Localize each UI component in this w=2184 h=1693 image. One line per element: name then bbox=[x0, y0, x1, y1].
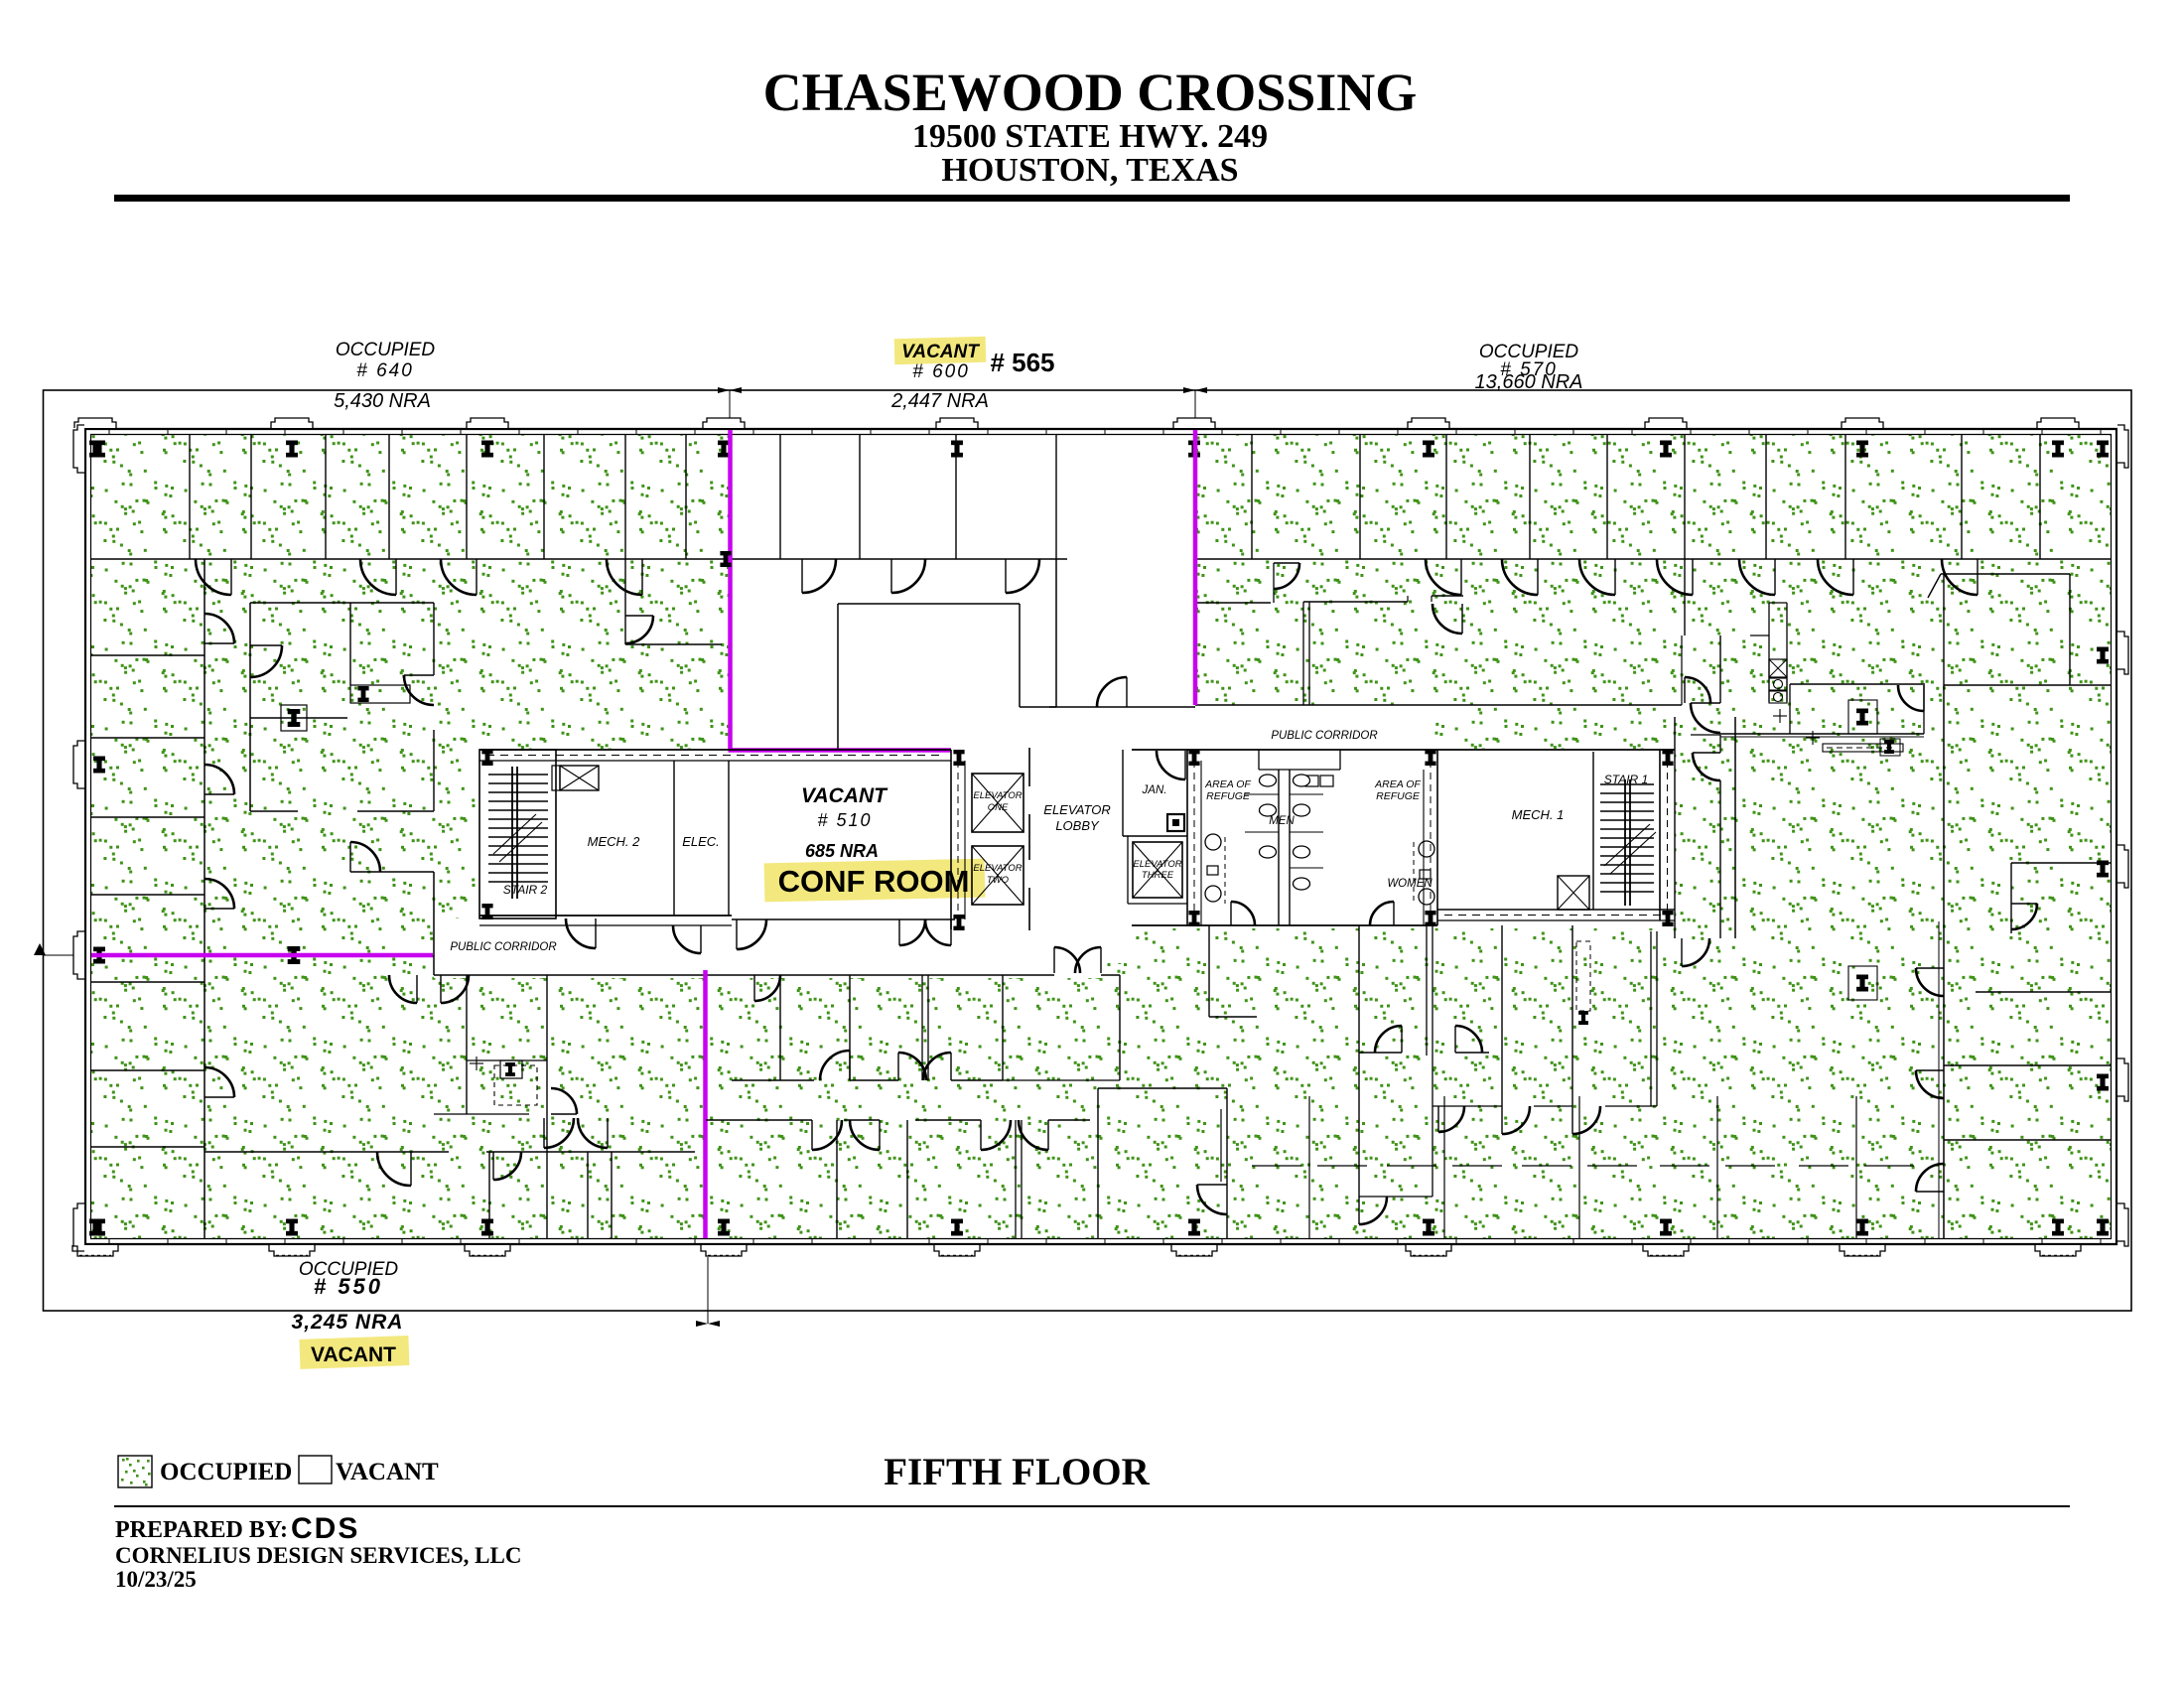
svg-text:5,430 NRA: 5,430 NRA bbox=[334, 390, 431, 412]
svg-text:AREA OF: AREA OF bbox=[1374, 778, 1421, 790]
svg-text:# 640: # 640 bbox=[356, 360, 414, 381]
svg-text:VACANT: VACANT bbox=[336, 1459, 439, 1485]
svg-text:REFUGE: REFUGE bbox=[1376, 790, 1421, 802]
svg-text:VACANT: VACANT bbox=[901, 342, 980, 362]
svg-text:10/23/25: 10/23/25 bbox=[115, 1567, 197, 1592]
svg-text:FIFTH FLOOR: FIFTH FLOOR bbox=[884, 1451, 1150, 1493]
svg-text:OCCUPIED: OCCUPIED bbox=[160, 1459, 292, 1485]
svg-text:ELEVATOR: ELEVATOR bbox=[973, 863, 1022, 874]
svg-text:MEN: MEN bbox=[1269, 815, 1295, 827]
svg-text:TWO: TWO bbox=[987, 875, 1010, 886]
svg-text:STAIR 2: STAIR 2 bbox=[503, 883, 548, 897]
svg-text:AREA OF: AREA OF bbox=[1204, 778, 1251, 790]
svg-text:THREE: THREE bbox=[1142, 870, 1174, 881]
svg-text:# 600: # 600 bbox=[912, 361, 970, 382]
svg-text:VACANT: VACANT bbox=[311, 1343, 396, 1366]
svg-text:CDS: CDS bbox=[291, 1512, 359, 1545]
svg-text:3,245 NRA: 3,245 NRA bbox=[292, 1311, 404, 1334]
svg-text:PUBLIC CORRIDOR: PUBLIC CORRIDOR bbox=[1271, 730, 1377, 742]
svg-text:CONF ROOM: CONF ROOM bbox=[778, 864, 970, 899]
svg-text:CHASEWOOD CROSSING: CHASEWOOD CROSSING bbox=[763, 63, 1418, 122]
svg-text:# 550: # 550 bbox=[314, 1274, 383, 1299]
svg-text:ONE: ONE bbox=[988, 802, 1009, 813]
svg-text:ELEC.: ELEC. bbox=[682, 834, 720, 849]
svg-text:REFUGE: REFUGE bbox=[1206, 790, 1251, 802]
svg-text:# 565: # 565 bbox=[990, 348, 1054, 377]
svg-text:PUBLIC CORRIDOR: PUBLIC CORRIDOR bbox=[450, 941, 556, 953]
svg-text:STAIR 1: STAIR 1 bbox=[1604, 773, 1648, 786]
svg-text:MECH. 2: MECH. 2 bbox=[588, 834, 641, 849]
svg-text:VACANT: VACANT bbox=[801, 784, 888, 807]
svg-text:ELEVATOR: ELEVATOR bbox=[973, 790, 1022, 801]
svg-text:# 510: # 510 bbox=[817, 810, 872, 830]
svg-text:CORNELIUS DESIGN SERVICES, LLC: CORNELIUS DESIGN SERVICES, LLC bbox=[115, 1543, 521, 1568]
svg-text:2,447 NRA: 2,447 NRA bbox=[890, 390, 989, 412]
svg-text:PREPARED BY:: PREPARED BY: bbox=[115, 1517, 288, 1543]
svg-text:ELEVATOR: ELEVATOR bbox=[1133, 859, 1181, 870]
svg-text:685 NRA: 685 NRA bbox=[805, 841, 879, 861]
svg-text:13,660 NRA: 13,660 NRA bbox=[1475, 371, 1583, 393]
svg-text:HOUSTON, TEXAS: HOUSTON, TEXAS bbox=[941, 152, 1238, 189]
svg-text:WOMEN: WOMEN bbox=[1387, 878, 1433, 890]
svg-text:LOBBY: LOBBY bbox=[1055, 818, 1100, 833]
svg-text:19500 STATE HWY. 249: 19500 STATE HWY. 249 bbox=[912, 118, 1268, 155]
svg-text:JAN.: JAN. bbox=[1142, 784, 1167, 796]
svg-text:ELEVATOR: ELEVATOR bbox=[1043, 802, 1110, 817]
svg-text:OCCUPIED: OCCUPIED bbox=[336, 340, 436, 360]
svg-text:MECH. 1: MECH. 1 bbox=[1512, 807, 1565, 822]
